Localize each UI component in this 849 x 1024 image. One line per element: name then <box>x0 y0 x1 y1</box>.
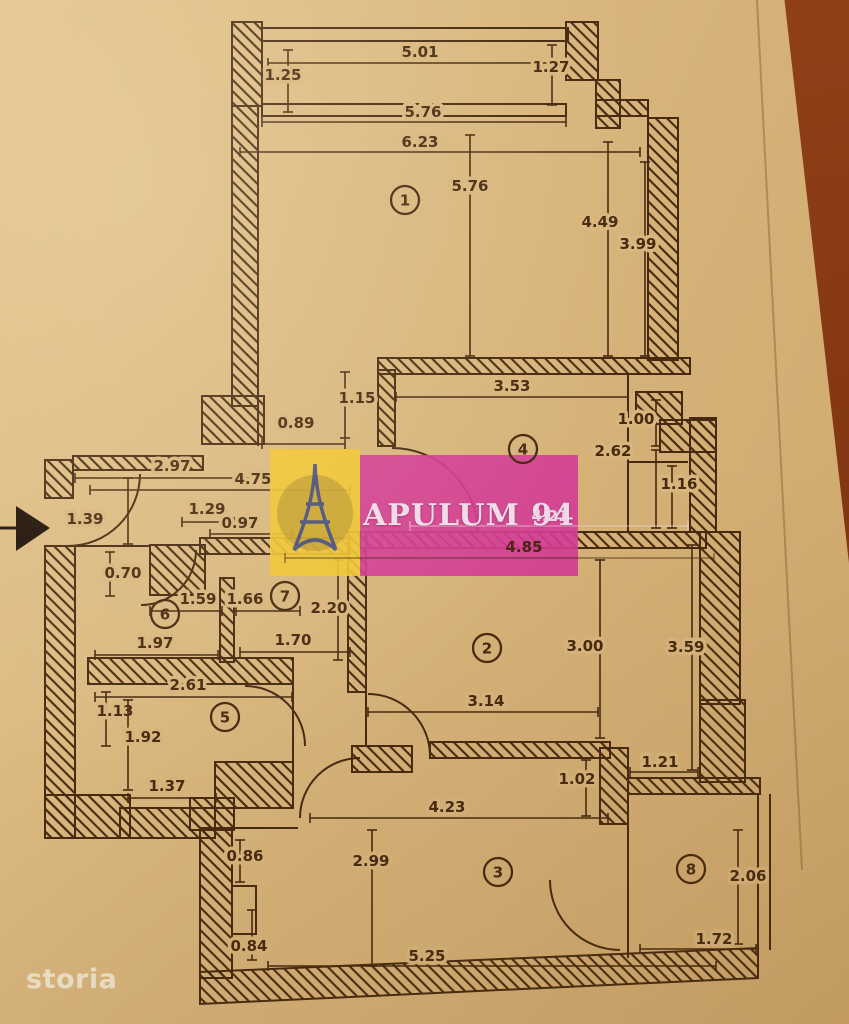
room-number-label: 6 <box>160 606 170 624</box>
room-number-label: 8 <box>686 861 696 879</box>
room-number-label: 1 <box>400 192 410 210</box>
overlay-dimension-layer: 4.854.21 <box>285 507 714 563</box>
room-number: 7 <box>271 582 299 610</box>
room-number: 2 <box>473 634 501 662</box>
dimension: 4.85 <box>285 538 714 563</box>
room-number: 1 <box>391 186 419 214</box>
plan-annotations: 12345678 4.854.21 <box>0 0 849 1024</box>
storia-logo: storia <box>26 964 117 995</box>
room-number: 6 <box>151 600 179 628</box>
photographed-floor-plan: { "watermark": { "brand": "APULUM 94", "… <box>0 0 849 1024</box>
room-number: 8 <box>677 855 705 883</box>
room-number-label: 3 <box>493 864 503 882</box>
room-number-label: 2 <box>482 640 492 658</box>
room-number-label: 5 <box>220 709 230 727</box>
room-number: 5 <box>211 703 239 731</box>
dimension: 4.21 <box>410 507 688 531</box>
room-number-label: 7 <box>280 588 290 606</box>
room-number: 4 <box>509 435 537 463</box>
room-number-label: 4 <box>518 441 528 459</box>
dimension-label: 4.21 <box>531 507 568 525</box>
dimension-label: 4.85 <box>505 538 542 556</box>
room-number: 3 <box>484 858 512 886</box>
room-number-layer: 12345678 <box>151 186 705 886</box>
